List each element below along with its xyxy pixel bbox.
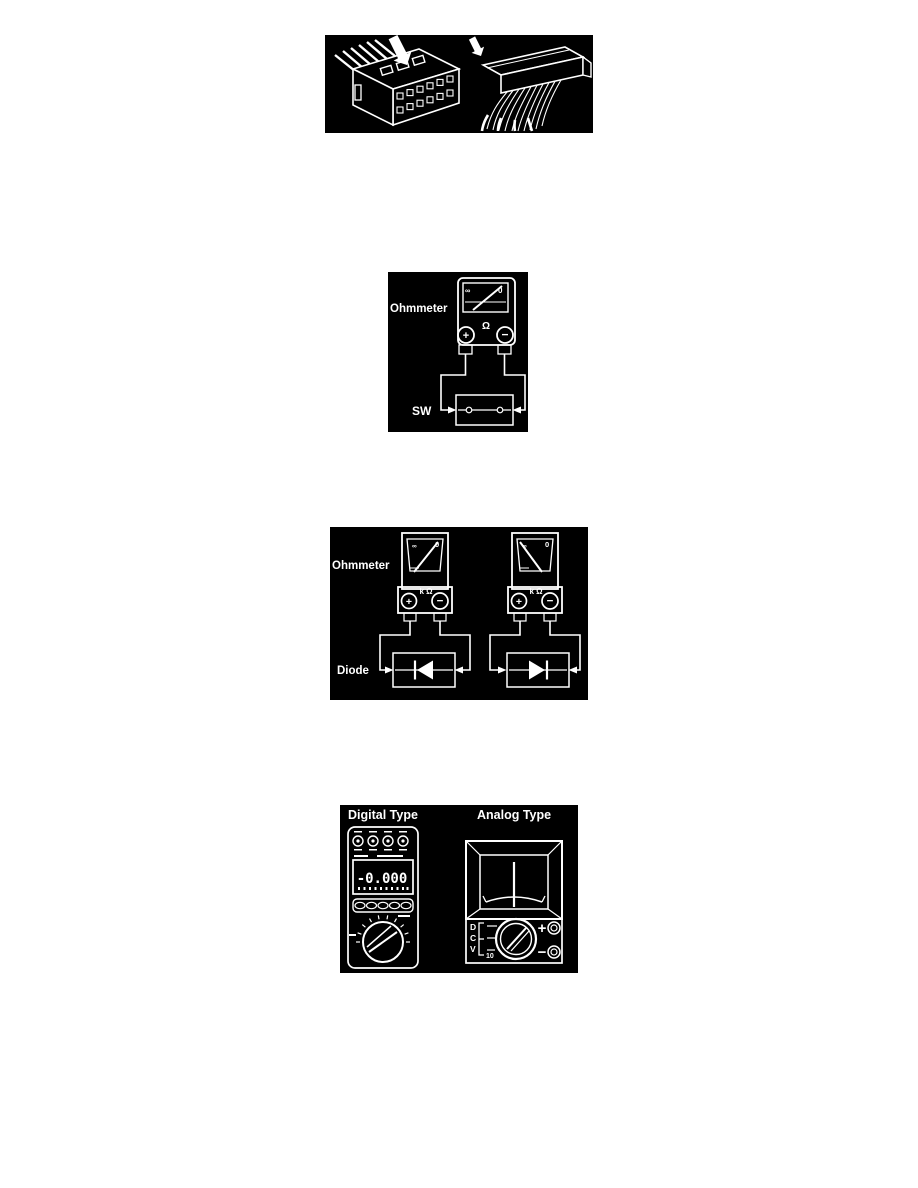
- svg-text:V: V: [470, 944, 476, 954]
- diode-symbol: [395, 661, 453, 680]
- range-10-label: 10: [486, 953, 494, 960]
- svg-text:+: +: [538, 920, 547, 937]
- svg-text:+: +: [406, 596, 412, 608]
- figure-switch-continuity-test: Ohmmeter ∞ 0 Ω + −: [388, 272, 528, 432]
- brand-text-marks: [354, 855, 403, 857]
- digital-multimeter: -0.000: [348, 827, 418, 968]
- rotary-dial: [349, 915, 410, 962]
- plus-terminal: +: [538, 920, 560, 937]
- svg-text:−: −: [547, 596, 554, 608]
- diode-box-left: [393, 653, 455, 687]
- arrow-icon: [448, 407, 457, 414]
- probe-socket: [498, 345, 511, 354]
- minus-terminal: −: [432, 593, 448, 609]
- plus-terminal: +: [402, 594, 417, 609]
- switch-symbol: [458, 407, 511, 413]
- arrow-icon: [385, 667, 394, 674]
- ohmmeter-label: Ohmmeter: [332, 560, 390, 572]
- analog-multimeter: D C V 10: [466, 841, 562, 963]
- lcd-display: -0.000: [353, 860, 413, 894]
- function-buttons: [353, 899, 413, 912]
- arrow-icon: [455, 667, 464, 674]
- ohmmeter-right: ∞ 0 k Ω + −: [508, 533, 562, 621]
- ohmmeter-body: ∞ 0 Ω + −: [458, 278, 515, 354]
- figure-multimeter-types: Digital Type Analog Type: [340, 805, 578, 973]
- display-scale-marks: [358, 887, 409, 890]
- test-lead-wire: [380, 621, 410, 670]
- test-lead-wire-right: [505, 354, 526, 410]
- figure-connector-inspection: [325, 35, 593, 133]
- diode-box-right: [507, 653, 569, 687]
- plus-terminal: +: [512, 594, 527, 609]
- female-connector-art: [469, 36, 591, 131]
- digital-reading: -0.000: [357, 871, 408, 887]
- omega-symbol: Ω: [482, 321, 490, 332]
- svg-text:−: −: [437, 596, 444, 608]
- ohmmeter-label: Ohmmeter: [390, 303, 448, 315]
- probe-socket: [459, 345, 472, 354]
- kilo-ohm-symbol: k Ω: [419, 587, 433, 596]
- svg-text:D: D: [470, 922, 476, 932]
- switch-box: [456, 395, 513, 425]
- diode-symbol: [509, 661, 567, 680]
- test-lead-wire-left: [441, 354, 466, 410]
- male-connector-art: [335, 35, 459, 125]
- svg-text:+: +: [516, 596, 522, 608]
- sw-label: SW: [412, 404, 432, 418]
- infinity-symbol: ∞: [412, 543, 417, 550]
- manual-page: Ohmmeter ∞ 0 Ω + −: [0, 0, 918, 1188]
- svg-text:−: −: [538, 944, 547, 961]
- minus-terminal: −: [542, 593, 558, 609]
- arrow-icon: [513, 407, 522, 414]
- diode-label: Diode: [337, 665, 369, 677]
- meter-scale-window: [466, 841, 562, 919]
- down-arrow-icon: [469, 36, 484, 56]
- test-lead-wire: [490, 621, 520, 670]
- minus-terminal: −: [497, 327, 513, 343]
- meter-needle: [473, 286, 502, 310]
- probe-socket: [514, 613, 526, 621]
- arrow-icon: [498, 667, 507, 674]
- probe-socket: [404, 613, 416, 621]
- range-knob: [496, 919, 536, 959]
- arrow-icon: [569, 667, 578, 674]
- svg-text:C: C: [470, 933, 476, 943]
- meter-needle: [414, 542, 438, 572]
- kilo-ohm-symbol: k Ω: [529, 587, 543, 596]
- infinity-symbol: ∞: [465, 286, 470, 295]
- zero-symbol: 0: [545, 540, 549, 549]
- probe-socket: [544, 613, 556, 621]
- test-lead-wire: [550, 621, 580, 670]
- minus-terminal: −: [538, 944, 560, 961]
- figure-diode-test: Ohmmeter Diode ∞ 0 k Ω + −: [330, 527, 588, 700]
- input-jacks: [353, 831, 408, 851]
- ohmmeter-left: ∞ 0 k Ω + −: [398, 533, 452, 621]
- svg-text:−: −: [501, 328, 508, 342]
- dcv-markings: D C V 10: [470, 922, 497, 960]
- digital-type-label: Digital Type: [348, 808, 418, 822]
- analog-type-label: Analog Type: [477, 808, 551, 822]
- svg-text:+: +: [463, 330, 469, 342]
- plus-terminal: +: [458, 327, 474, 343]
- probe-socket: [434, 613, 446, 621]
